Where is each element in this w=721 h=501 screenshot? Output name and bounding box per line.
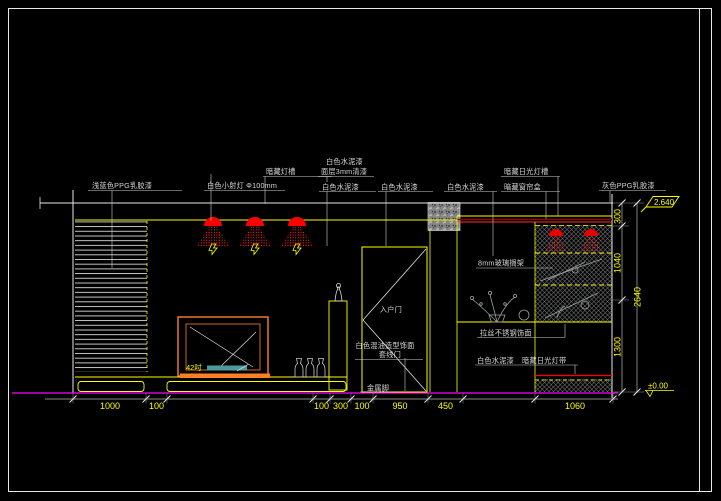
- plant-stem-3: [497, 297, 515, 322]
- label-glass-shelf: 8mm玻璃搁架: [478, 259, 524, 268]
- decor-bowl: [519, 310, 529, 320]
- vase-3: [317, 359, 325, 378]
- plinth-hatch: [535, 379, 612, 392]
- vase-1: [295, 359, 303, 378]
- label-light-cove: 暗藏灯槽: [266, 167, 296, 176]
- hatch-blocks: [428, 203, 612, 393]
- downlight-icon: [280, 217, 314, 247]
- label-white-cement-2: 白色水泥漆: [322, 183, 359, 192]
- dim-value: 100: [354, 401, 369, 411]
- label-white-cement-4: 白色水泥漆: [447, 183, 484, 192]
- ceiling-level-value: 2.640: [654, 198, 675, 207]
- tv-screen-diagonal-2: [218, 332, 256, 369]
- dim-value: 100: [149, 401, 164, 411]
- tv-screen-diagonal-1: [190, 327, 253, 367]
- floor-level-triangle: [646, 391, 653, 397]
- plinth-left: [78, 382, 144, 392]
- door-finish-label-1: 白色混油造型饰面: [355, 341, 414, 350]
- dim-value: 100: [314, 401, 329, 411]
- entry-door-label: 入户门: [380, 305, 402, 314]
- statue-body: [335, 287, 342, 301]
- label-curtain-box: 暗藏窗帘盒: [504, 183, 541, 192]
- label-fluorescent-cove: 暗藏日光灯槽: [504, 167, 548, 176]
- dim-value: 300: [613, 209, 623, 224]
- label-white-cement-3: 白色水泥漆: [381, 183, 418, 192]
- vase-2: [306, 359, 314, 378]
- label-white-cement-1: 白色水泥漆: [326, 157, 363, 166]
- dim-value: 1040: [613, 253, 623, 273]
- louver-slats: [75, 221, 147, 372]
- label-white-cement-bottom: 白色水泥漆: [477, 356, 514, 365]
- floor-level-value: ±0.00: [648, 382, 669, 391]
- dim-value: 1000: [100, 401, 120, 411]
- plant-stem-2: [490, 294, 497, 322]
- ceiling-level-pole: [641, 207, 646, 212]
- dim-value: 1060: [565, 401, 585, 411]
- dim-value: 1300: [613, 337, 623, 357]
- elevation-markers: 2.640 ±0.00: [641, 197, 679, 397]
- tv-unit: 42吋: [178, 317, 270, 378]
- dim-value: 450: [438, 401, 453, 411]
- plant-leaf-5: [504, 303, 507, 306]
- display-cabinet-hatch: [535, 225, 612, 322]
- tv-size-label: 42吋: [186, 362, 202, 372]
- dimension-bottom: 1000 100 100 300 100 950 450 1060: [45, 394, 618, 412]
- dim-value: 300: [333, 401, 348, 411]
- dim-value: 950: [392, 401, 407, 411]
- metal-feet-label: 金属脚: [367, 384, 389, 393]
- dimension-right: 300 1040 1300 2640: [613, 200, 645, 396]
- label-left-wall-paint: 浅蓝色PPG乳胶漆: [92, 181, 152, 190]
- tv-base-bar: [180, 374, 270, 379]
- downlight-icon: [238, 217, 272, 247]
- label-right-wall-paint: 灰色PPG乳胶漆: [602, 181, 655, 190]
- door-finish-label-2: 套线门: [379, 350, 401, 359]
- entry-door: 入户门 白色混油造型饰面 套线门 金属脚: [355, 247, 427, 393]
- door-frame: [362, 247, 427, 392]
- tv-shelf: [207, 366, 247, 371]
- dim-value-total: 2640: [633, 287, 643, 307]
- plant-leaf-4: [480, 303, 483, 306]
- label-stainless-finish: 拉丝不锈钢饰面: [480, 329, 532, 338]
- elevation-drawing: 42吋 入户门 白色混油造型饰面 套线门 金属脚: [0, 0, 721, 501]
- concrete-column-hatch: [428, 203, 460, 231]
- downlight-icon: [196, 217, 230, 247]
- plinth-center: [167, 382, 346, 392]
- plant-stem-1: [472, 299, 497, 322]
- label-light-strip: 暗藏日光灯带: [522, 356, 566, 365]
- cad-drawing-sheet: 42吋 入户门 白色混油造型饰面 套线门 金属脚: [0, 0, 721, 501]
- label-downlight: 白色小射灯 Φ100mm: [207, 181, 277, 190]
- label-white-cement-1-sub: 面层3mm清漆: [321, 167, 367, 176]
- decor-left: [295, 284, 347, 391]
- louver-panel: [75, 221, 147, 372]
